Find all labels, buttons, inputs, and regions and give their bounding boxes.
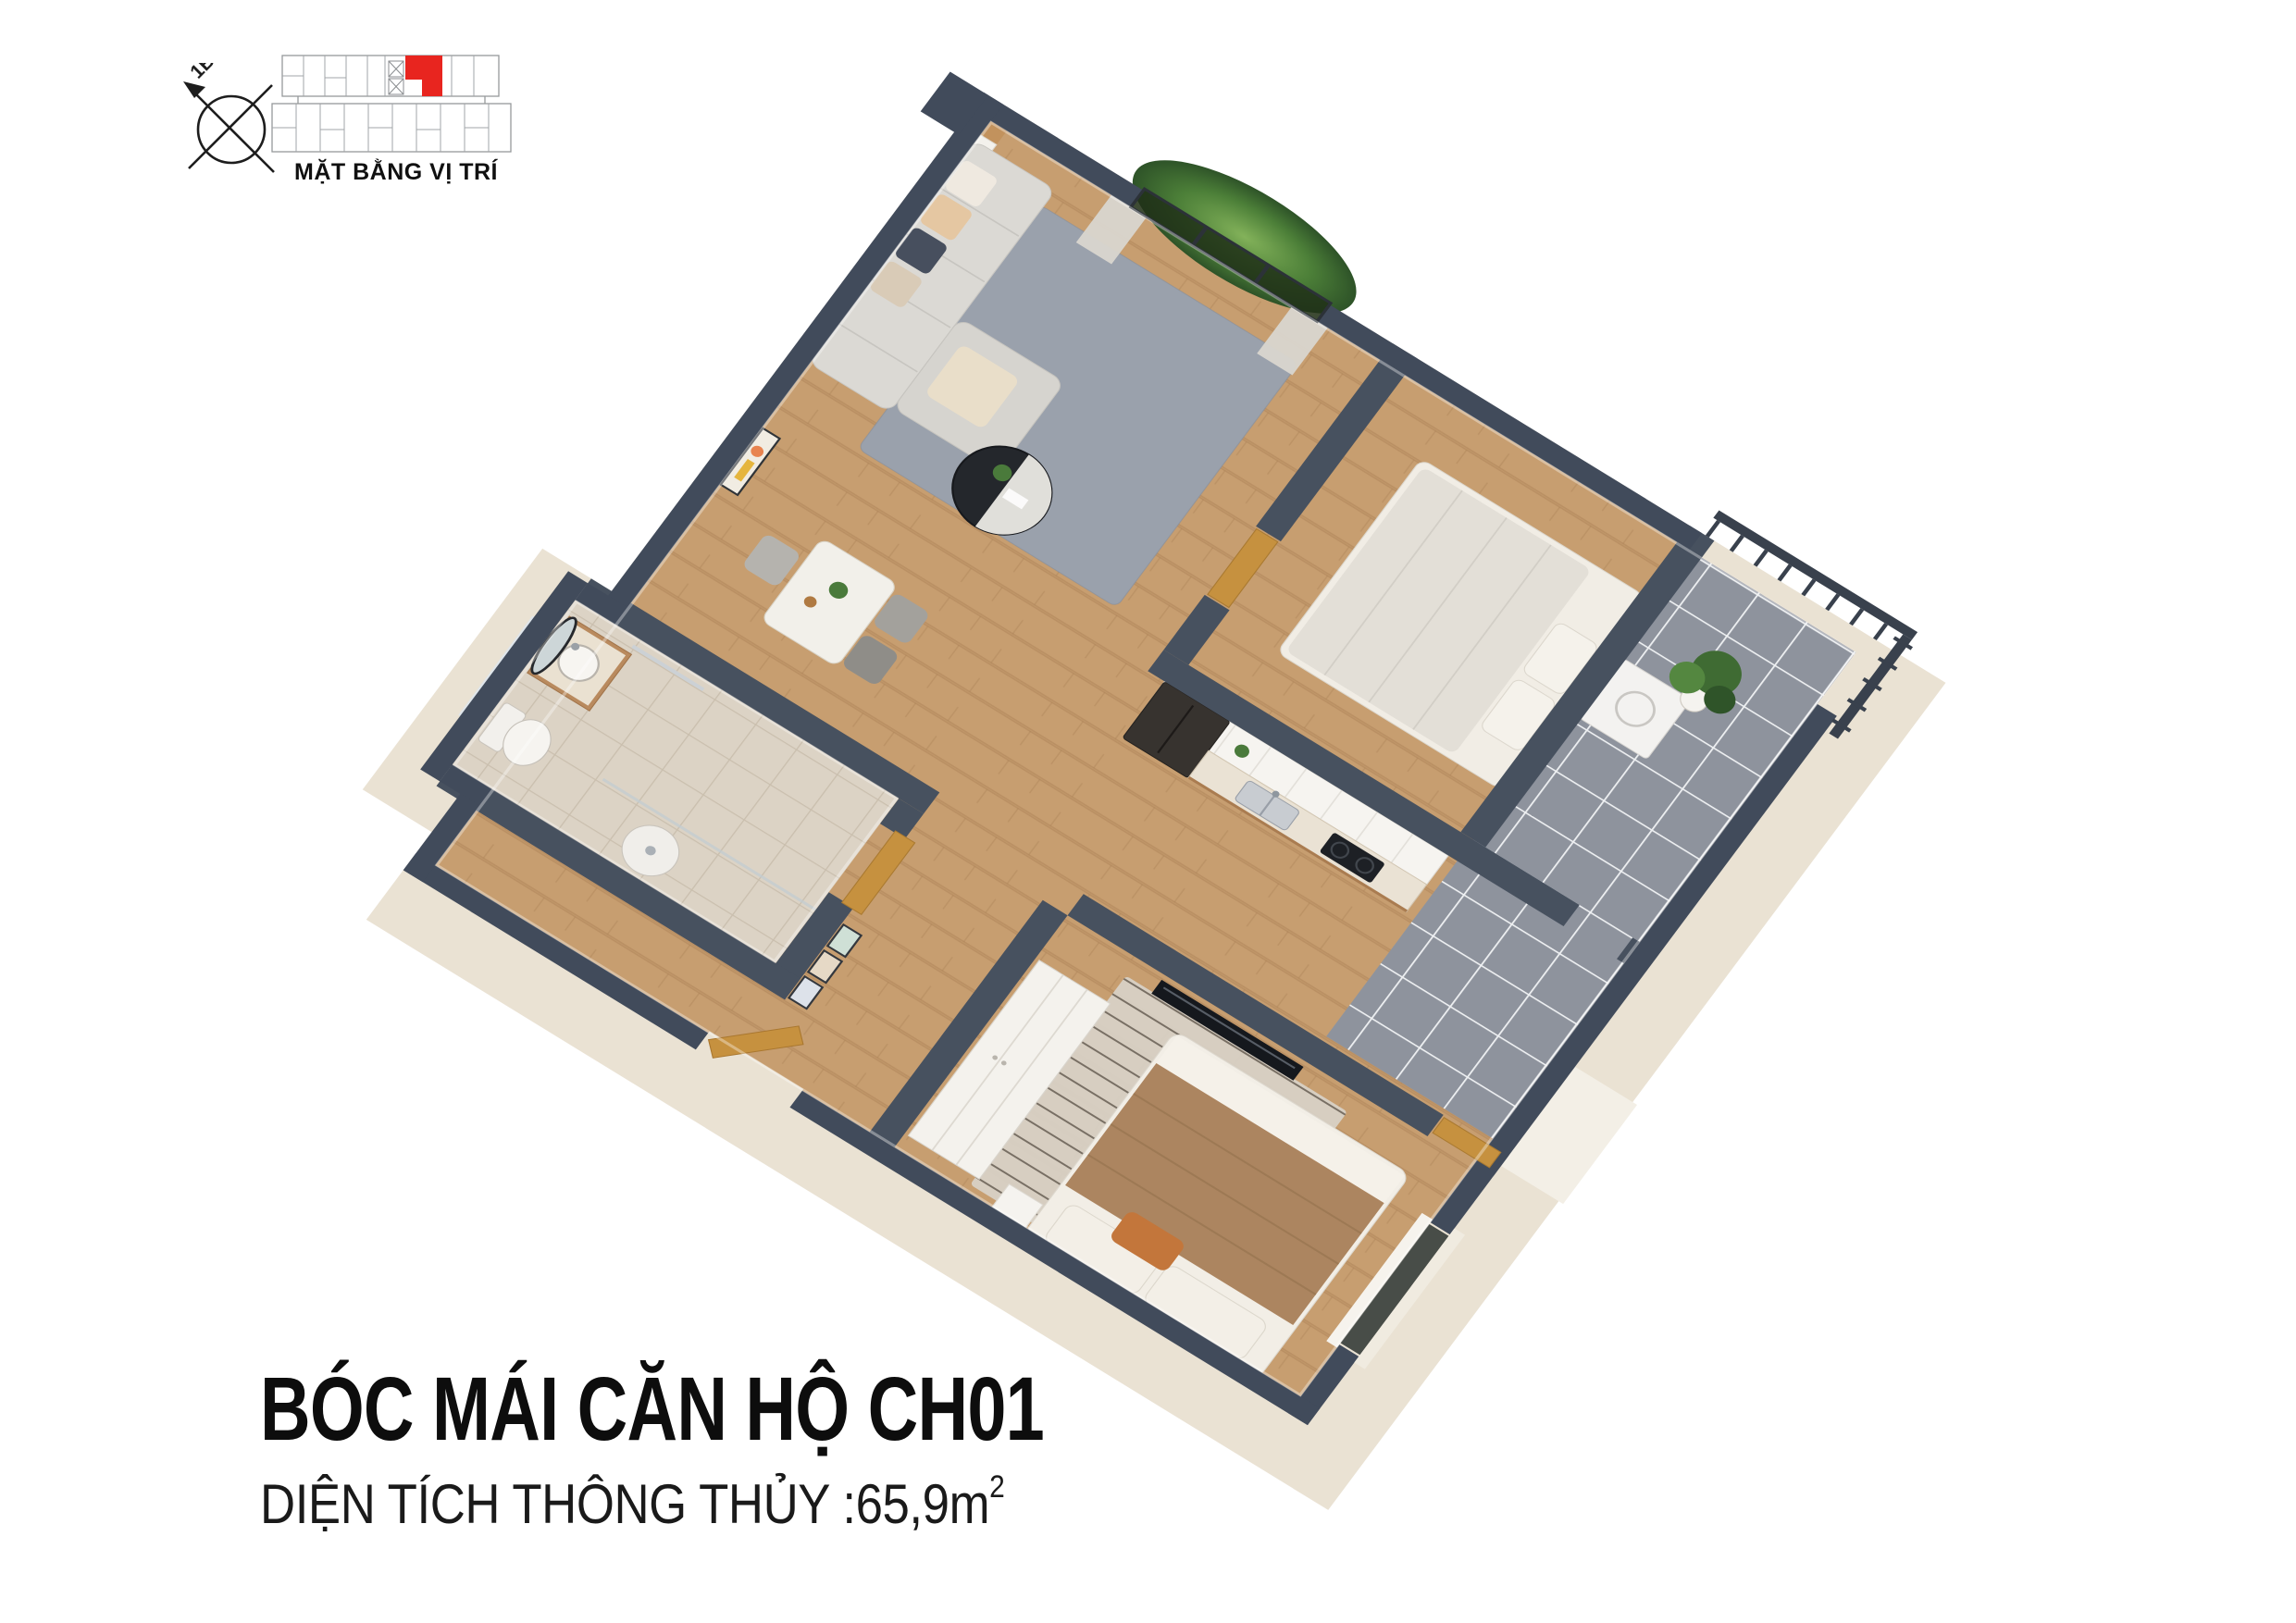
poster-page: 1B: [0, 0, 2296, 1623]
page-title: BÓC MÁI CĂN HỘ CH01: [260, 1362, 1044, 1456]
caption-block: BÓC MÁI CĂN HỘ CH01 DIỆN TÍCH THÔNG THỦY…: [260, 1362, 1265, 1536]
area-text: DIỆN TÍCH THÔNG THỦY :65,9m2: [260, 1469, 1145, 1536]
area-label: DIỆN TÍCH THÔNG THỦY :65,9m: [260, 1473, 989, 1535]
area-superscript: 2: [989, 1469, 1004, 1505]
